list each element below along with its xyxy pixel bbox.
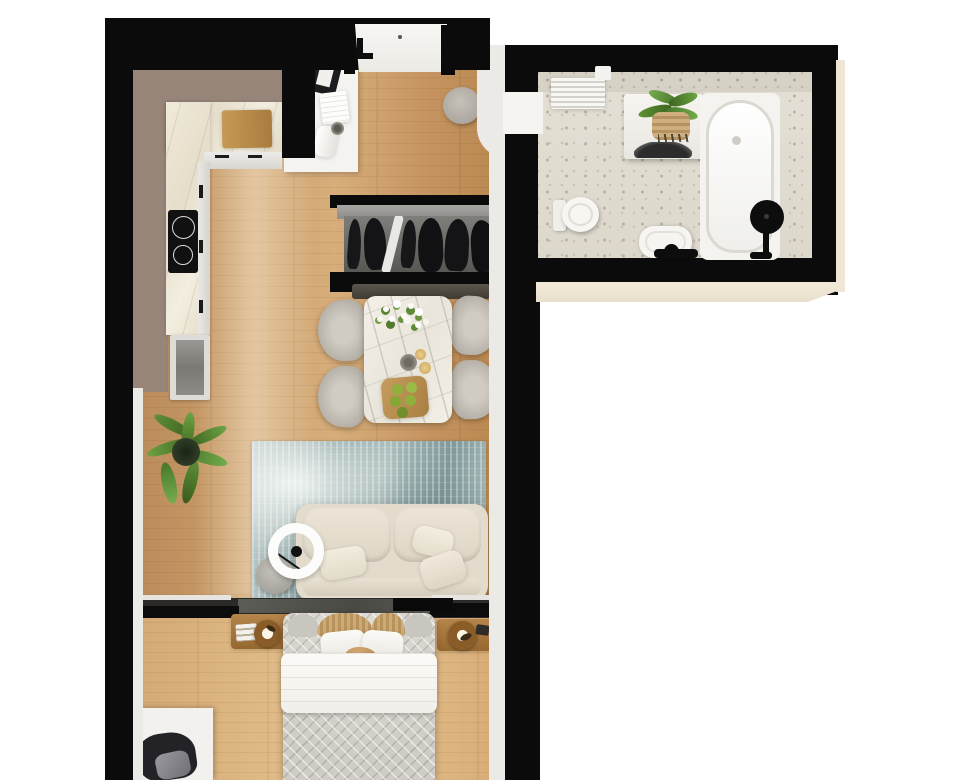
cup	[331, 122, 344, 135]
bathroom-edge-bottom	[536, 282, 845, 302]
white-duvet	[281, 653, 437, 713]
door-handle-icon	[357, 53, 373, 59]
apples-icon	[392, 384, 403, 395]
entrance-door	[352, 24, 450, 72]
plant-pot	[172, 438, 200, 466]
partition-white-ledge	[143, 595, 231, 600]
palm-leaf-icon	[158, 461, 180, 505]
flower-bouquet-blooms	[401, 313, 407, 319]
exterior-wall-left	[105, 18, 133, 780]
cooktop-burner-icon	[173, 245, 193, 265]
bathroom-edge-right	[836, 60, 845, 292]
bathtub-drain-icon	[732, 136, 741, 145]
small-plate	[415, 349, 426, 360]
hanging-clothes-icon	[417, 218, 444, 273]
shower-base	[750, 252, 772, 259]
cabinet-handle-icon	[248, 155, 262, 158]
hanging-clothes-icon	[444, 218, 471, 271]
partition-dark-box	[393, 598, 453, 611]
floor-plan	[0, 0, 960, 780]
gray-pouf	[443, 87, 481, 124]
cutting-board	[222, 110, 273, 149]
shower-head-dot	[764, 214, 769, 219]
kitchen-tall-cabinet-inner	[176, 340, 204, 395]
decor-script-icon	[658, 134, 692, 142]
small-plate	[419, 362, 431, 374]
hanging-clothes-icon	[400, 219, 419, 268]
potted-palm	[144, 414, 228, 506]
cabinet-handle-icon	[199, 240, 203, 253]
towel-radiator	[551, 78, 605, 109]
palm-leaf-icon	[179, 459, 202, 505]
cabinet-handle-icon	[199, 300, 203, 313]
cooktop-burner-icon	[172, 216, 195, 239]
door-frame	[441, 25, 455, 75]
kitchen-wall-band-left	[131, 70, 168, 392]
cabinet-handle-icon	[215, 155, 229, 158]
papers	[319, 90, 350, 124]
bed-scallop-cushion	[288, 614, 318, 637]
partition-rail	[127, 606, 239, 618]
sink-faucet-icon	[664, 244, 679, 259]
washer-plant	[638, 90, 702, 148]
floor-lamp-hub	[291, 546, 302, 557]
wardrobe-interior	[344, 216, 501, 274]
bed-scallop-cushion	[404, 614, 432, 637]
nightstand-book	[475, 624, 489, 636]
door-frame	[344, 22, 355, 74]
door-peephole-icon	[398, 35, 402, 39]
bathroom-doorway	[503, 92, 543, 134]
radiator-pipe	[595, 66, 611, 80]
fruit-tray	[380, 375, 429, 420]
wall-pier	[282, 18, 315, 158]
toilet-seat	[568, 203, 593, 226]
cabinet-handle-icon	[199, 185, 203, 198]
hanging-clothes-icon	[346, 219, 362, 270]
